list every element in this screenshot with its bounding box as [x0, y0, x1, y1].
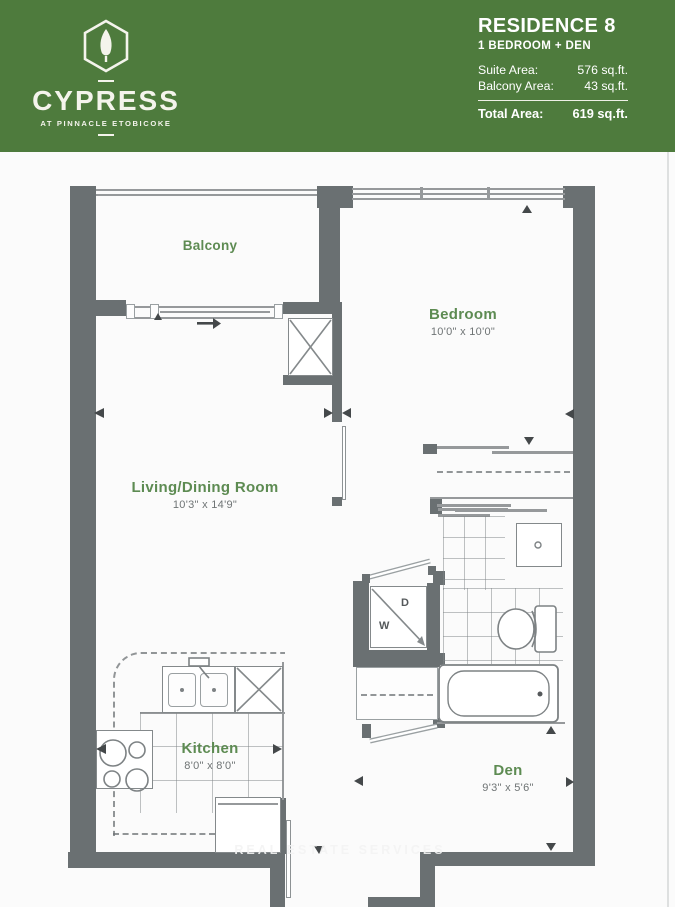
kitchen-right-arrow: [273, 744, 282, 754]
vanity-drain-icon: [535, 542, 541, 548]
kitchen-faucet-icon: [180, 658, 216, 692]
watermark-text: REAL ESTATE SERVICES: [120, 843, 560, 857]
plan-arrows: [94, 205, 574, 854]
washer-dryer-diagonal: [372, 589, 425, 646]
den-right-arrow: [566, 777, 574, 787]
balcony-swing-arrow-stem: [197, 322, 213, 325]
hall-door-arrow-left: [324, 408, 333, 418]
den-top-arrow: [546, 726, 556, 734]
kitchen-left-arrow: [96, 744, 106, 754]
toilet-icon: [498, 606, 556, 652]
cooktop-burners-icon: [100, 740, 148, 791]
floorplan-annotations: [0, 0, 675, 907]
balcony-swing-arrow: [213, 318, 221, 329]
shaft-x-icon: [290, 320, 331, 374]
den-closet-door-leaf: [362, 724, 437, 741]
bathtub-icon: [439, 665, 558, 722]
hall-door-arrow-right: [342, 408, 351, 418]
dishwasher-x-icon: [237, 668, 281, 711]
balcony-marker-arrow: [154, 313, 162, 320]
floorplan-page: CYPRESS AT PINNACLE ETOBICOKE RESIDENCE …: [0, 0, 675, 907]
living-left-arrow: [94, 408, 104, 418]
den-left-arrow: [354, 776, 363, 786]
laundry-door-leaf: [362, 561, 436, 583]
rightwall-marker-arrow: [565, 409, 574, 419]
closet-marker-arrow: [524, 437, 534, 445]
tub-drain-icon: [538, 692, 543, 697]
bedroom-marker-arrow: [522, 205, 532, 213]
